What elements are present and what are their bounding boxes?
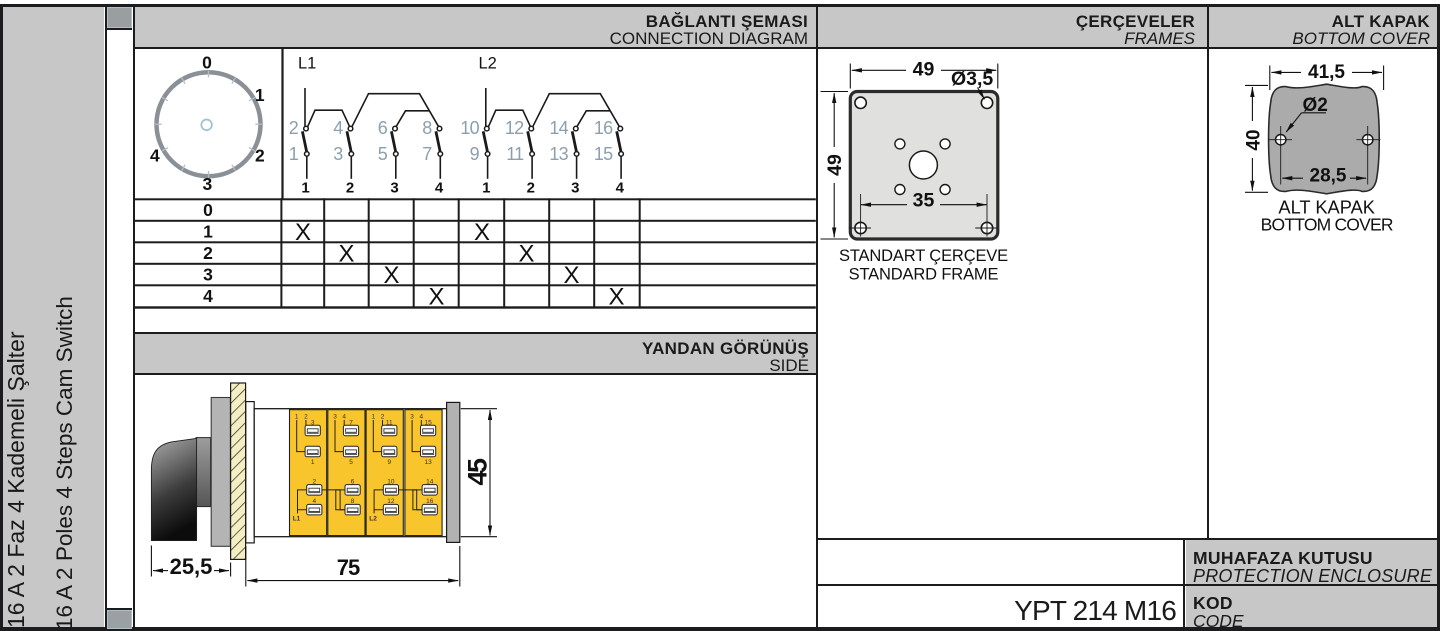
svg-text:STANDART ÇERÇEVE: STANDART ÇERÇEVE	[839, 247, 1008, 265]
svg-text:1: 1	[203, 222, 213, 242]
svg-text:49: 49	[913, 58, 935, 80]
svg-text:X: X	[383, 262, 399, 289]
svg-text:28,5: 28,5	[1310, 166, 1347, 187]
svg-text:1: 1	[295, 414, 299, 421]
svg-text:0: 0	[202, 53, 212, 73]
svg-text:14: 14	[549, 118, 568, 138]
svg-text:41,5: 41,5	[1308, 62, 1345, 83]
svg-text:13: 13	[549, 144, 568, 164]
svg-text:1: 1	[255, 85, 265, 105]
svg-text:2: 2	[255, 146, 265, 166]
svg-text:9: 9	[470, 144, 480, 164]
svg-text:25,5: 25,5	[170, 554, 213, 579]
svg-text:L2: L2	[369, 515, 377, 522]
svg-text:1: 1	[289, 144, 299, 164]
svg-text:3: 3	[410, 414, 414, 421]
svg-text:5: 5	[349, 459, 353, 466]
svg-text:7: 7	[422, 144, 432, 164]
svg-text:12: 12	[505, 118, 524, 138]
svg-text:45: 45	[463, 458, 493, 486]
svg-text:0: 0	[203, 200, 213, 220]
svg-text:9: 9	[387, 459, 391, 466]
svg-text:1: 1	[371, 414, 375, 421]
svg-text:BOTTOM COVER: BOTTOM COVER	[1261, 215, 1393, 235]
svg-text:35: 35	[913, 190, 935, 212]
svg-text:L1: L1	[293, 515, 301, 522]
svg-text:8: 8	[422, 118, 432, 138]
svg-text:X: X	[563, 262, 579, 289]
svg-text:X: X	[518, 241, 534, 268]
svg-text:10: 10	[460, 118, 479, 138]
svg-text:11: 11	[506, 144, 524, 164]
svg-text:3: 3	[333, 144, 343, 164]
svg-text:4: 4	[203, 286, 213, 306]
svg-text:16: 16	[594, 118, 613, 138]
svg-text:2: 2	[289, 118, 299, 138]
svg-text:5: 5	[378, 144, 388, 164]
svg-text:4: 4	[150, 146, 160, 166]
svg-text:X: X	[295, 219, 311, 246]
svg-text:2: 2	[304, 414, 308, 421]
svg-text:1: 1	[311, 459, 315, 466]
svg-text:75: 75	[337, 555, 360, 580]
svg-text:STANDARD FRAME: STANDARD FRAME	[849, 266, 999, 284]
svg-text:49: 49	[824, 154, 846, 176]
svg-text:L2: L2	[479, 55, 497, 73]
svg-text:4: 4	[342, 414, 346, 421]
svg-text:6: 6	[378, 118, 388, 138]
svg-text:X: X	[474, 219, 490, 246]
svg-text:40: 40	[1243, 129, 1264, 150]
svg-text:2: 2	[203, 243, 213, 263]
svg-text:X: X	[608, 284, 624, 311]
svg-text:2: 2	[381, 414, 385, 421]
svg-text:4: 4	[333, 118, 343, 138]
svg-text:4: 4	[419, 414, 423, 421]
svg-text:3: 3	[333, 414, 337, 421]
svg-text:X: X	[428, 284, 444, 311]
svg-text:15: 15	[594, 144, 613, 164]
svg-text:L1: L1	[298, 55, 316, 73]
svg-text:3: 3	[203, 265, 213, 285]
svg-text:X: X	[338, 241, 354, 268]
svg-text:Ø3,5: Ø3,5	[951, 68, 993, 90]
svg-text:13: 13	[424, 459, 432, 466]
